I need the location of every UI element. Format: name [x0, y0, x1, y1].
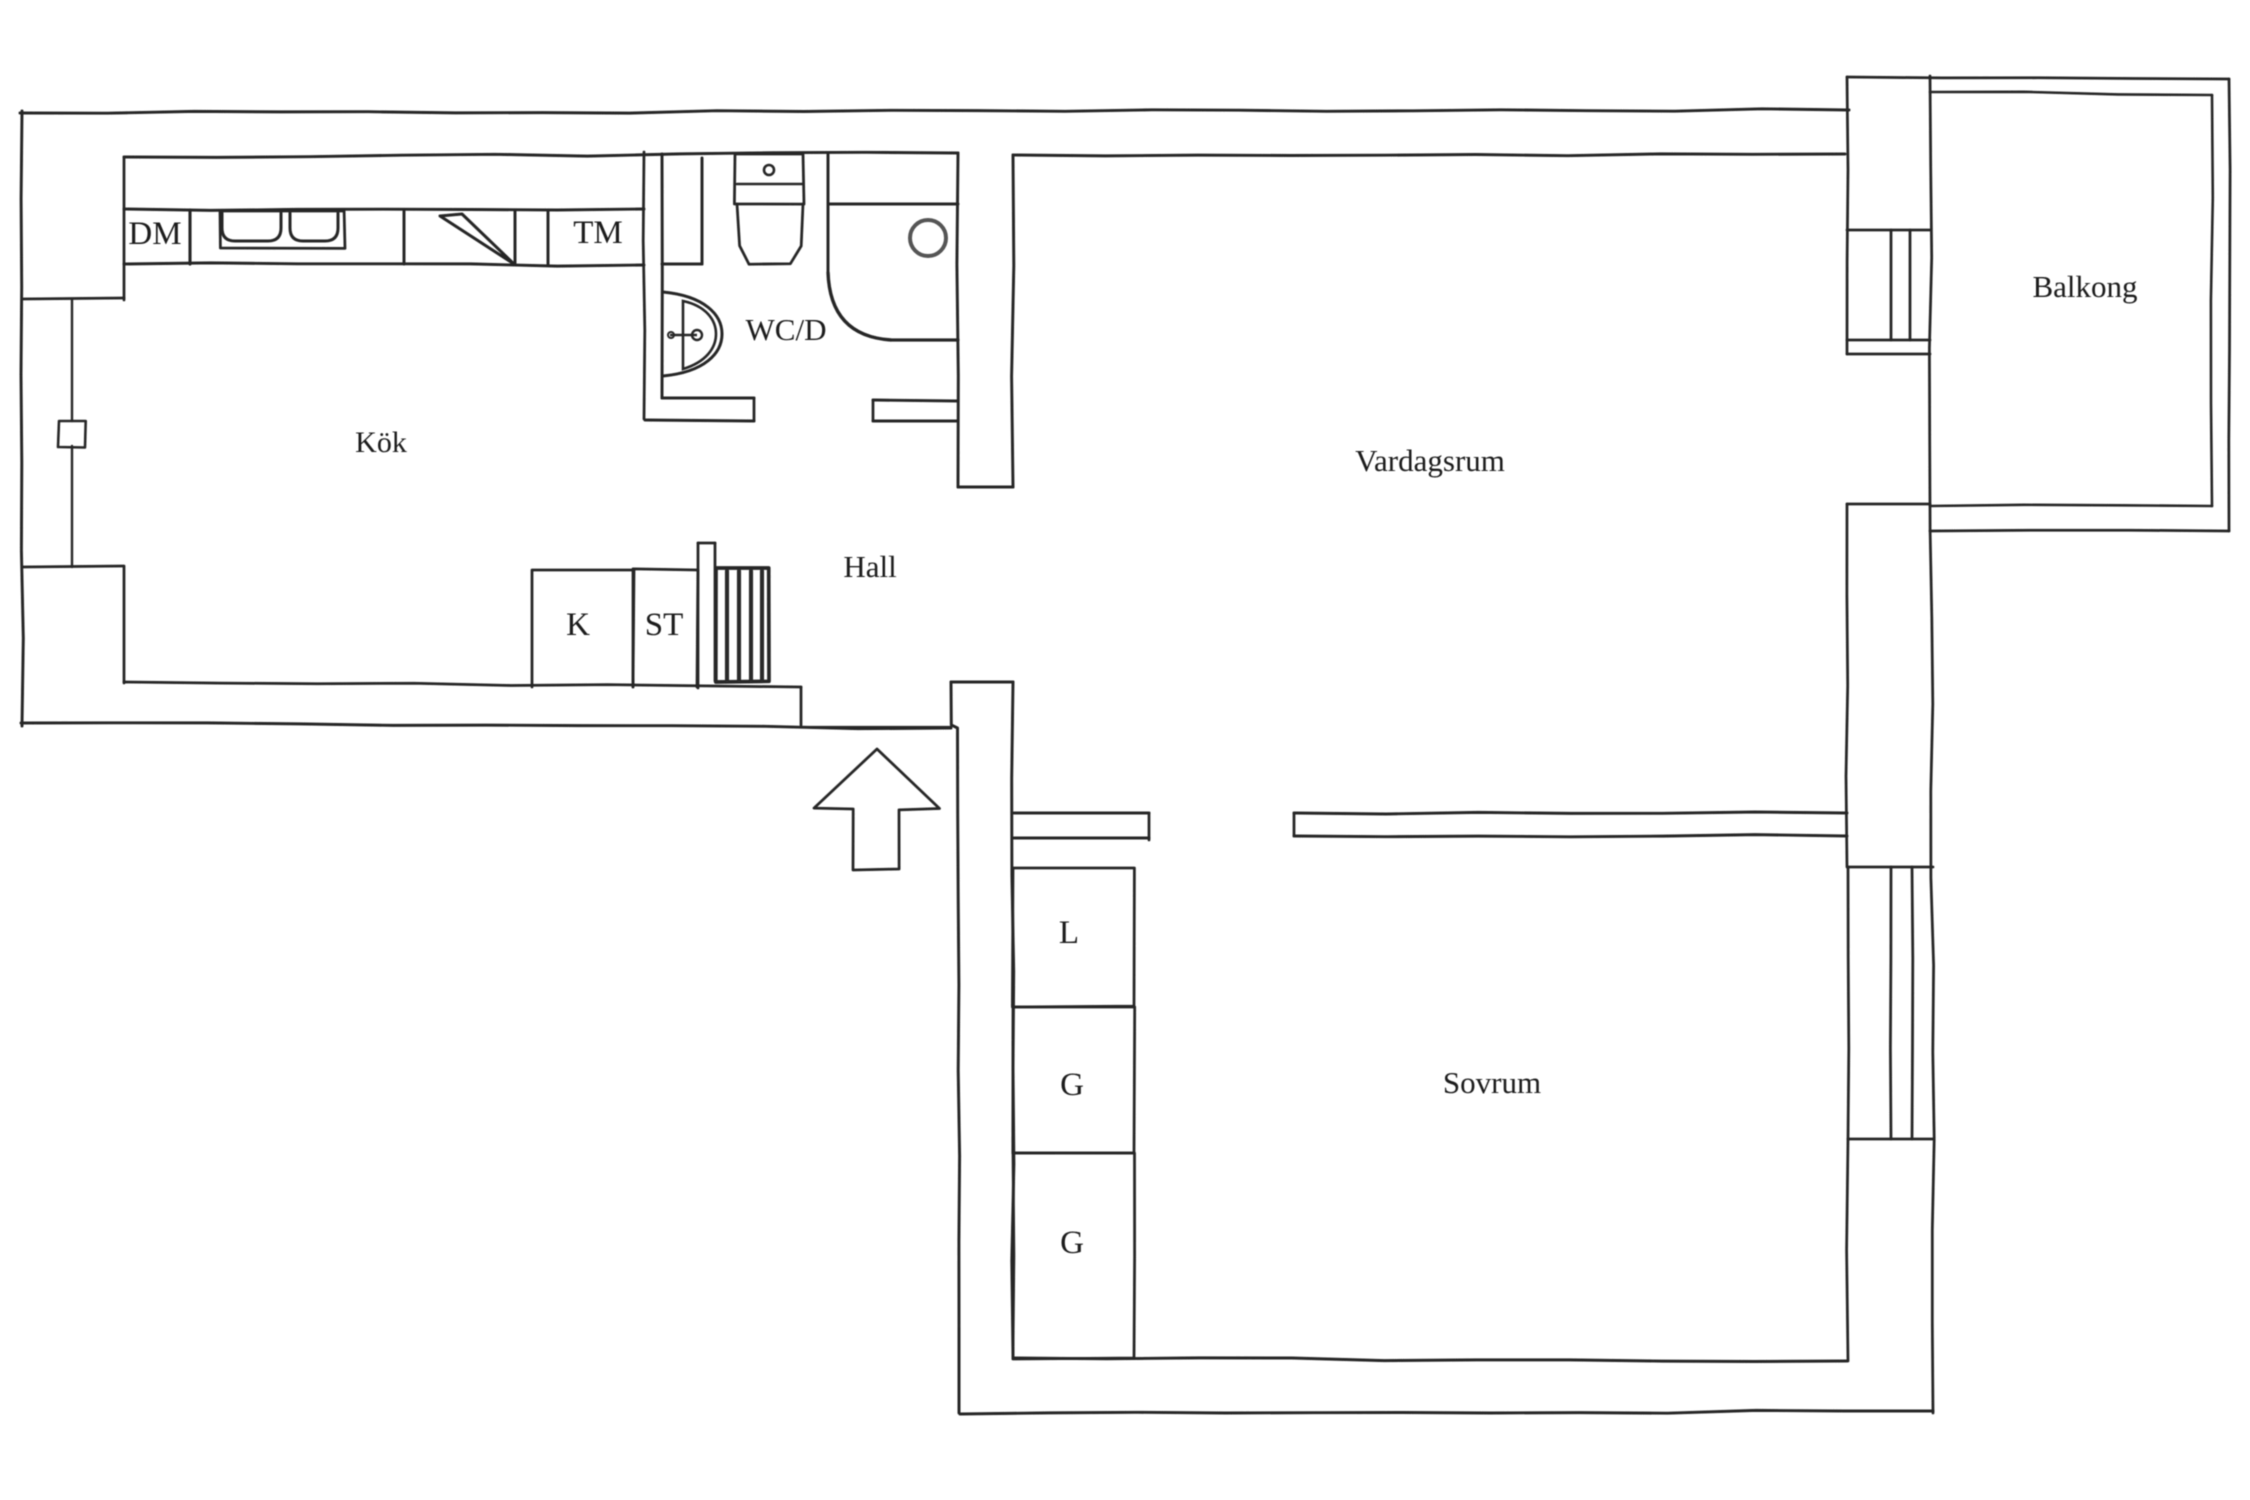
- svg-text:K: K: [566, 607, 590, 643]
- svg-text:G: G: [1060, 1225, 1084, 1261]
- svg-text:WC/D: WC/D: [746, 312, 827, 347]
- svg-text:Balkong: Balkong: [2032, 269, 2137, 304]
- svg-text:ST: ST: [645, 607, 684, 643]
- svg-text:Hall: Hall: [843, 549, 896, 584]
- svg-text:TM: TM: [573, 215, 623, 251]
- svg-text:Vardagsrum: Vardagsrum: [1355, 443, 1505, 478]
- svg-text:L: L: [1059, 915, 1079, 951]
- svg-text:Kök: Kök: [355, 426, 407, 459]
- svg-text:Sovrum: Sovrum: [1443, 1065, 1541, 1100]
- svg-text:DM: DM: [128, 216, 181, 252]
- svg-text:G: G: [1060, 1067, 1084, 1103]
